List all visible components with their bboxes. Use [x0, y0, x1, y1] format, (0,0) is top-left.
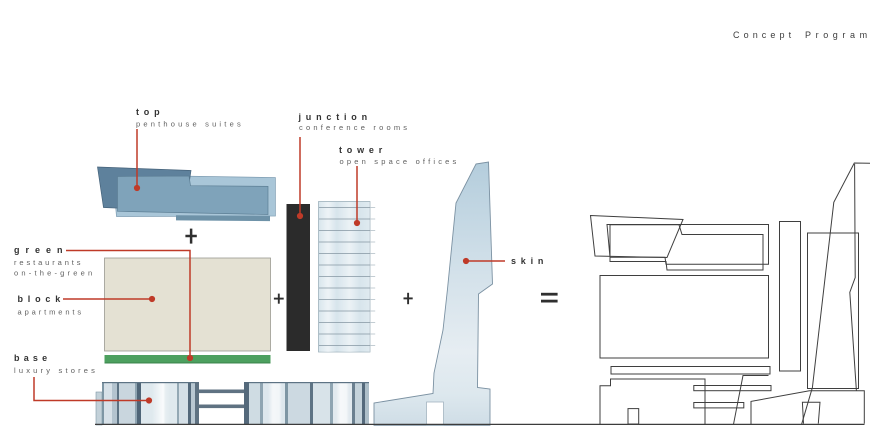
- svg-text:skin: skin: [511, 256, 548, 266]
- svg-text:on-the-green: on-the-green: [14, 269, 95, 278]
- svg-text:green: green: [14, 245, 69, 255]
- svg-text:tower: tower: [339, 145, 387, 155]
- svg-text:base: base: [14, 353, 51, 363]
- svg-text:restaurants: restaurants: [14, 258, 83, 267]
- svg-text:apartments: apartments: [18, 308, 85, 317]
- svg-text:luxury stores: luxury stores: [14, 366, 98, 375]
- svg-text:conference rooms: conference rooms: [299, 123, 410, 132]
- svg-text:Concept: Concept: [733, 30, 795, 40]
- svg-text:open space offices: open space offices: [340, 157, 460, 166]
- svg-text:penthouse suites: penthouse suites: [136, 120, 244, 129]
- svg-text:block: block: [18, 294, 66, 304]
- svg-text:Program: Program: [805, 30, 870, 40]
- svg-text:top: top: [136, 107, 164, 117]
- svg-text:junction: junction: [298, 112, 372, 122]
